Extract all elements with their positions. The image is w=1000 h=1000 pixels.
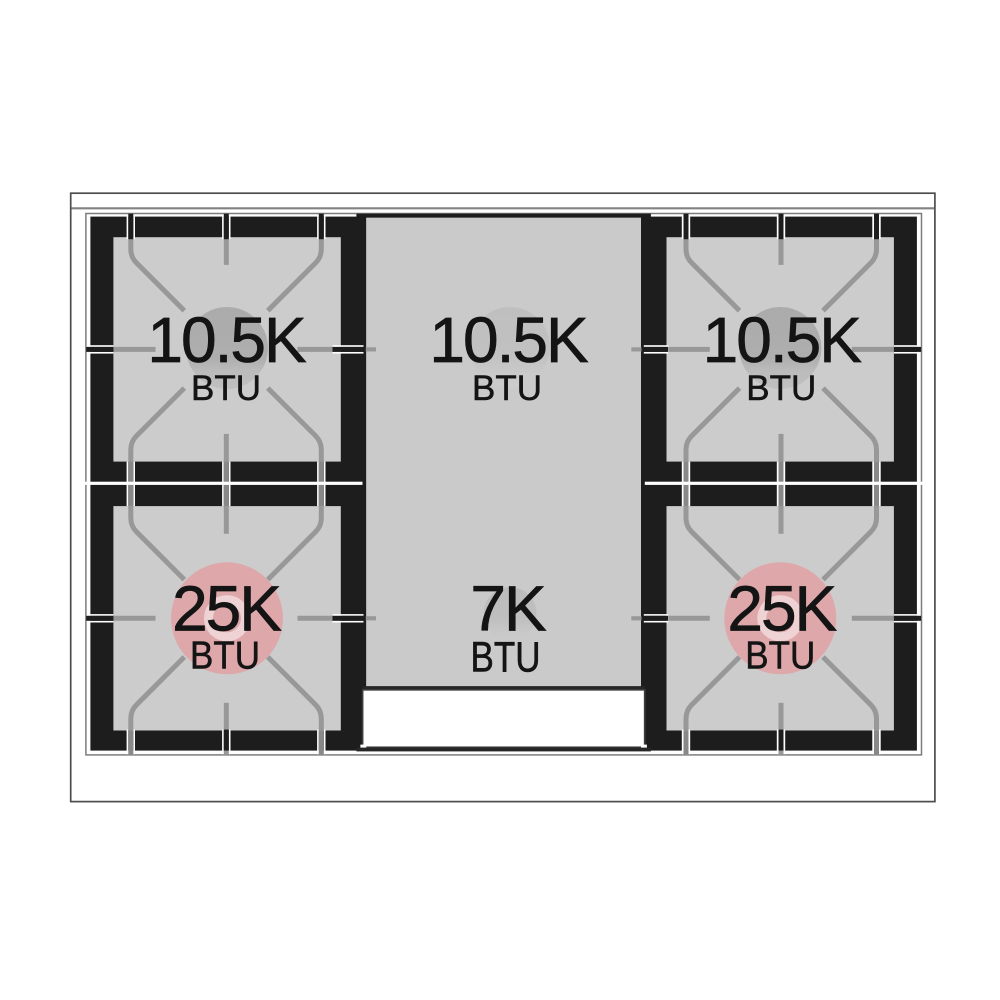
svg-text:10.5K: 10.5K	[703, 304, 862, 376]
svg-text:BTU: BTU	[745, 634, 815, 677]
svg-text:BTU: BTU	[190, 634, 260, 677]
svg-text:BTU: BTU	[471, 634, 541, 681]
svg-text:BTU: BTU	[472, 369, 542, 408]
svg-text:10.5K: 10.5K	[429, 304, 588, 376]
svg-text:10.5K: 10.5K	[147, 304, 306, 376]
svg-text:BTU: BTU	[746, 369, 816, 408]
svg-text:BTU: BTU	[191, 369, 261, 408]
